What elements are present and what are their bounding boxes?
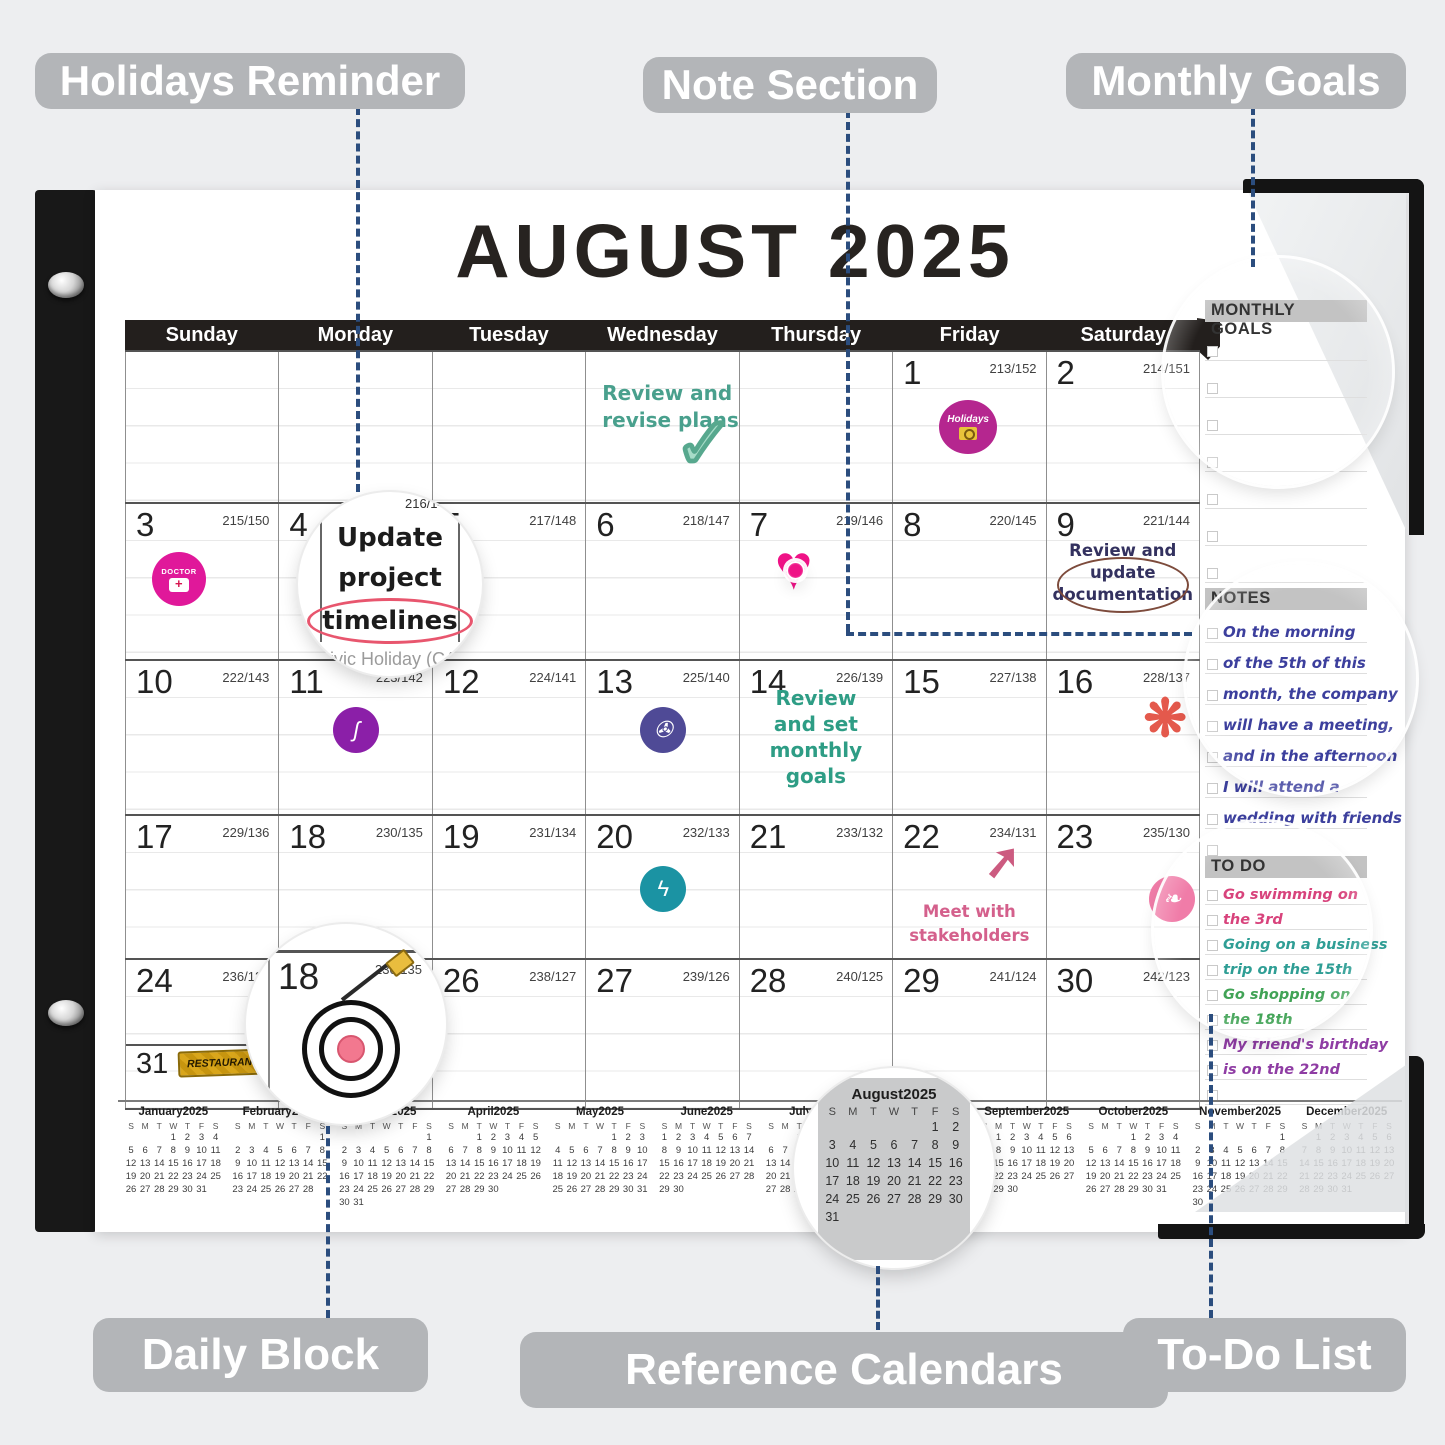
mini-day: 25 xyxy=(843,1190,864,1208)
note-line: goals xyxy=(740,763,892,789)
weekday-letter: T xyxy=(394,1121,408,1131)
mini-day: 7 xyxy=(593,1144,607,1157)
mini-day: 6 xyxy=(1062,1131,1076,1144)
mini-day: 22 xyxy=(657,1170,671,1183)
day-code: 217/148 xyxy=(529,513,576,528)
mini-day: 24 xyxy=(822,1190,843,1208)
day-number: 18 xyxy=(278,956,319,998)
mini-day: 24 xyxy=(635,1170,649,1183)
mini-day: 22 xyxy=(607,1170,621,1183)
backboard-edge xyxy=(1409,179,1424,535)
mini-day: 13 xyxy=(579,1157,593,1170)
mini-day: 30 xyxy=(337,1196,351,1209)
mini-day: 7 xyxy=(301,1144,315,1157)
checkbox-icon xyxy=(1207,814,1218,825)
mini-day: 3 xyxy=(1155,1131,1169,1144)
mini-day: 20 xyxy=(579,1170,593,1183)
mini-day: 20 xyxy=(1062,1157,1076,1170)
day-number: 1 xyxy=(903,354,921,392)
callout-monthly-goals: Monthly Goals xyxy=(1066,53,1406,109)
day-number: 18 xyxy=(289,818,326,856)
blank xyxy=(380,1131,394,1144)
mini-day: 10 xyxy=(194,1144,208,1157)
mini-day: 2 xyxy=(621,1131,635,1144)
mini-day: 3 xyxy=(822,1136,843,1154)
day-code: 221/144 xyxy=(1143,513,1190,528)
blank xyxy=(593,1131,607,1144)
weekday-letter: F xyxy=(301,1121,315,1131)
mini-day: 26 xyxy=(124,1183,138,1196)
blank xyxy=(565,1131,579,1144)
blank xyxy=(1191,1131,1205,1144)
weekday-letter: W xyxy=(593,1121,607,1131)
day-code: 238/127 xyxy=(529,969,576,984)
mini-day: 13 xyxy=(394,1157,408,1170)
day-code: 230/135 xyxy=(376,825,423,840)
mini-day: 4 xyxy=(259,1144,273,1157)
mini-day: 18 xyxy=(551,1170,565,1183)
checkbox-icon xyxy=(1207,531,1218,542)
day-number: 15 xyxy=(903,663,940,701)
week-row: 10222/14311223/142ʃ12224/14113225/140✇14… xyxy=(125,659,1200,814)
weekday-letter: W xyxy=(1126,1121,1140,1131)
heart-ring-sticker: ♥ xyxy=(766,544,822,596)
mini-day: 18 xyxy=(366,1170,380,1183)
mini-day: 11 xyxy=(209,1144,223,1157)
weekday-letter: W xyxy=(1020,1121,1034,1131)
mini-month-title: October2025 xyxy=(1084,1106,1183,1118)
mini-day: 15 xyxy=(657,1157,671,1170)
mini-days: 1234567891011121314151617181920212223242… xyxy=(551,1131,650,1196)
mini-day: 26 xyxy=(1084,1183,1098,1196)
mini-day: 13 xyxy=(444,1157,458,1170)
mini-day: 20 xyxy=(1098,1170,1112,1183)
mini-day: 15 xyxy=(472,1157,486,1170)
mini-day: 23 xyxy=(945,1172,966,1190)
mini-day: 9 xyxy=(486,1144,500,1157)
mini-day: 7 xyxy=(778,1144,792,1157)
mini-day: 10 xyxy=(686,1144,700,1157)
mini-day: 22 xyxy=(472,1170,486,1183)
mini-day: 4 xyxy=(209,1131,223,1144)
day-cell: 17229/136 xyxy=(125,816,279,958)
mini-day: 24 xyxy=(351,1183,365,1196)
mini-day: 13 xyxy=(138,1157,152,1170)
mini-day: 21 xyxy=(458,1170,472,1183)
connector-reference xyxy=(876,1266,880,1330)
connector-daily-block xyxy=(326,1126,330,1318)
mini-days: 1234567891011121314151617181920212223242… xyxy=(444,1131,543,1196)
mini-day: 14 xyxy=(152,1157,166,1170)
mini-day: 25 xyxy=(514,1170,528,1183)
weekday-letter: S xyxy=(1275,1121,1289,1131)
mini-day: 15 xyxy=(1126,1157,1140,1170)
mini-day: 27 xyxy=(394,1183,408,1196)
mini-day: 20 xyxy=(728,1157,742,1170)
mini-day: 28 xyxy=(458,1183,472,1196)
mini-day: 7 xyxy=(1112,1144,1126,1157)
mini-day: 25 xyxy=(1034,1170,1048,1183)
mini-day: 27 xyxy=(138,1183,152,1196)
mini-day: 29 xyxy=(166,1183,180,1196)
mini-weekday-row: SMTWTFS xyxy=(444,1121,543,1131)
blank xyxy=(843,1118,864,1136)
backboard-edge xyxy=(1409,1056,1424,1239)
day-number: 9 xyxy=(1057,506,1075,544)
mini-day: 10 xyxy=(500,1144,514,1157)
mini-day: 14 xyxy=(458,1157,472,1170)
day-number: 30 xyxy=(1057,962,1094,1000)
mini-day: 1 xyxy=(607,1131,621,1144)
mini-day: 29 xyxy=(991,1183,1005,1196)
mini-day: 28 xyxy=(152,1183,166,1196)
mini-weekday-row: SMTWTFS xyxy=(657,1121,756,1131)
weekday-letter: S xyxy=(1169,1121,1183,1131)
mini-day: 16 xyxy=(486,1157,500,1170)
mini-weekday-row: SMTWTFS xyxy=(977,1121,1076,1131)
mini-day: 4 xyxy=(1169,1131,1183,1144)
day-header: Wednesday xyxy=(586,320,740,350)
mini-calendar: February2025SMTWTFS123456789101112131415… xyxy=(227,1106,334,1209)
mini-day: 27 xyxy=(728,1170,742,1183)
mini-day: 3 xyxy=(635,1131,649,1144)
holidays-label: Holidays xyxy=(947,414,989,425)
mini-day: 9 xyxy=(945,1136,966,1154)
callout-todo-list: To-Do List xyxy=(1123,1318,1406,1392)
day-header: Friday xyxy=(893,320,1047,350)
mini-day: 9 xyxy=(231,1157,245,1170)
mini-month-title: April2025 xyxy=(444,1106,543,1118)
weekday-letter: S xyxy=(231,1121,245,1131)
day-cell: 15227/138 xyxy=(893,661,1046,814)
mini-day: 21 xyxy=(1112,1170,1126,1183)
mini-day: 12 xyxy=(124,1157,138,1170)
weekday-header-bar: SundayMondayTuesdayWednesdayThursdayFrid… xyxy=(125,320,1200,350)
day-code: 240/125 xyxy=(836,969,883,984)
mini-day: 14 xyxy=(301,1157,315,1170)
mini-day: 24 xyxy=(245,1183,259,1196)
blank xyxy=(822,1118,843,1136)
mini-day: 13 xyxy=(764,1157,778,1170)
day-cell xyxy=(740,352,893,502)
mini-day: 22 xyxy=(422,1170,436,1183)
weekday-letter: S xyxy=(764,1121,778,1131)
mini-day: 30 xyxy=(486,1183,500,1196)
mini-day: 6 xyxy=(1098,1144,1112,1157)
mini-day: 8 xyxy=(991,1144,1005,1157)
day-code: 228/137 xyxy=(1143,670,1190,685)
mini-day: 9 xyxy=(1191,1157,1205,1170)
weekday-letter: F xyxy=(1261,1121,1275,1131)
day-header: Sunday xyxy=(125,320,279,350)
mini-day: 7 xyxy=(408,1144,422,1157)
day-cell: 19231/134 xyxy=(433,816,586,958)
weekday-letter: T xyxy=(1034,1121,1048,1131)
mini-day: 3 xyxy=(194,1131,208,1144)
cell-border-line xyxy=(256,950,446,953)
mini-weekday-row: SMTWTFS xyxy=(822,1106,966,1118)
mini-day: 25 xyxy=(551,1183,565,1196)
mini-day: 18 xyxy=(1034,1157,1048,1170)
weekday-letter: T xyxy=(1247,1121,1261,1131)
doctor-sticker: DOCTOR xyxy=(152,552,206,606)
cell-border-line xyxy=(268,952,270,1124)
mini-day: 8 xyxy=(657,1144,671,1157)
mini-day: 19 xyxy=(565,1170,579,1183)
binder-strip xyxy=(35,190,97,1232)
weekday-letter: S xyxy=(124,1121,138,1131)
day-code: 215/150 xyxy=(222,513,269,528)
note-line: Review xyxy=(740,685,892,711)
mini-day: 18 xyxy=(843,1172,864,1190)
day-cell: 6218/147 xyxy=(586,504,739,659)
mini-day: 8 xyxy=(166,1144,180,1157)
weekday-letter: S xyxy=(209,1121,223,1131)
mini-day: 17 xyxy=(686,1157,700,1170)
camera-icon xyxy=(959,427,977,440)
mini-day: 18 xyxy=(1169,1157,1183,1170)
mini-day: 1 xyxy=(472,1131,486,1144)
blank xyxy=(1084,1131,1098,1144)
mini-day: 9 xyxy=(1006,1144,1020,1157)
blank xyxy=(458,1131,472,1144)
mini-day: 11 xyxy=(700,1144,714,1157)
list-item-text: is on the 22nd xyxy=(1223,1062,1340,1078)
mini-day: 27 xyxy=(444,1183,458,1196)
mini-weekday-row: SMTWTFS xyxy=(124,1121,223,1131)
mini-day: 15 xyxy=(166,1157,180,1170)
weekday-letter: F xyxy=(194,1121,208,1131)
weekday-letter: M xyxy=(1098,1121,1112,1131)
mini-day: 21 xyxy=(301,1170,315,1183)
doctor-label: DOCTOR xyxy=(161,567,196,576)
blank xyxy=(1219,1131,1233,1144)
mini-day: 4 xyxy=(700,1131,714,1144)
day-cell: 13225/140✇ xyxy=(586,661,739,814)
connector-note xyxy=(846,110,850,632)
checkbox-icon xyxy=(1207,568,1218,579)
day-number: 29 xyxy=(903,962,940,1000)
mini-month-title: September2025 xyxy=(977,1106,1076,1118)
mini-day: 5 xyxy=(714,1131,728,1144)
mini-day: 5 xyxy=(124,1144,138,1157)
mini-day: 28 xyxy=(1112,1183,1126,1196)
day-number: 22 xyxy=(903,818,940,856)
mini-day: 17 xyxy=(1020,1157,1034,1170)
weekday-letter: T xyxy=(366,1121,380,1131)
mini-day: 3 xyxy=(500,1131,514,1144)
mini-day: 1 xyxy=(991,1131,1005,1144)
mini-day: 2 xyxy=(231,1144,245,1157)
mini-day: 23 xyxy=(180,1170,194,1183)
note-line: monthly xyxy=(740,737,892,763)
weekday-letter: T xyxy=(1112,1121,1126,1131)
day-cell: 14226/139Reviewand setmonthlygoals xyxy=(740,661,893,814)
day-cell: 11223/142ʃ xyxy=(279,661,432,814)
blank xyxy=(366,1131,380,1144)
mini-day: 20 xyxy=(444,1170,458,1183)
mini-day: 8 xyxy=(607,1144,621,1157)
weekday-letter: T xyxy=(152,1121,166,1131)
day-cell: 12224/141 xyxy=(433,661,586,814)
magnifier-holidays-reminder: 216/149 Updateprojecttimelines Civic Hol… xyxy=(298,492,482,676)
note-line: documentation xyxy=(1047,584,1199,606)
mini-day: 29 xyxy=(422,1183,436,1196)
mini-day: 9 xyxy=(337,1157,351,1170)
mini-day: 20 xyxy=(138,1170,152,1183)
mini-day: 9 xyxy=(621,1144,635,1157)
mini-day: 29 xyxy=(925,1190,946,1208)
weekday-letter: S xyxy=(945,1106,966,1118)
weekday-letter: T xyxy=(287,1121,301,1131)
weekday-letter: W xyxy=(166,1121,180,1131)
mini-day: 16 xyxy=(945,1154,966,1172)
blank xyxy=(1112,1131,1126,1144)
mini-day: 31 xyxy=(822,1208,843,1226)
mini-day: 12 xyxy=(714,1144,728,1157)
mini-day: 12 xyxy=(273,1157,287,1170)
mini-day: 10 xyxy=(351,1157,365,1170)
mini-day: 23 xyxy=(621,1170,635,1183)
day-number: 17 xyxy=(136,818,173,856)
mini-weekday-row: SMTWTFS xyxy=(1191,1121,1290,1131)
weekday-letter: T xyxy=(1140,1121,1154,1131)
mini-day: 26 xyxy=(1048,1170,1062,1183)
blank xyxy=(1247,1131,1261,1144)
crab-sticker: ❋ xyxy=(1143,693,1187,745)
ring-icon xyxy=(786,561,805,580)
mini-day: 30 xyxy=(1140,1183,1154,1196)
mini-day: 8 xyxy=(1126,1144,1140,1157)
mini-day: 24 xyxy=(1020,1170,1034,1183)
mini-days: 1234567891011121314151617181920212223242… xyxy=(657,1131,756,1196)
day-number: 7 xyxy=(750,506,768,544)
mini-day: 9 xyxy=(1140,1144,1154,1157)
mini-day: 6 xyxy=(394,1144,408,1157)
day-code: 225/140 xyxy=(683,670,730,685)
day-number: 28 xyxy=(750,962,787,1000)
mini-weekday-row: SMTWTFS xyxy=(1084,1121,1183,1131)
ribbon-sticker: ʃ xyxy=(333,707,379,753)
mini-day: 14 xyxy=(904,1154,925,1172)
mini-day: 10 xyxy=(245,1157,259,1170)
day-code: 239/126 xyxy=(683,969,730,984)
weekday-letter: T xyxy=(472,1121,486,1131)
magnifier-reference-calendar: August2025SMTWTFS12345678910111213141516… xyxy=(794,1068,994,1268)
day-code: 235/130 xyxy=(1143,825,1190,840)
weekday-letter: F xyxy=(1155,1121,1169,1131)
mini-day: 25 xyxy=(209,1170,223,1183)
mini-day: 17 xyxy=(194,1157,208,1170)
mini-day: 25 xyxy=(259,1183,273,1196)
mini-day: 24 xyxy=(500,1170,514,1183)
blank xyxy=(152,1131,166,1144)
mini-day: 30 xyxy=(1006,1183,1020,1196)
mini-day: 30 xyxy=(621,1183,635,1196)
day-header: Thursday xyxy=(739,320,893,350)
day-cell: 3215/150DOCTOR xyxy=(125,504,279,659)
mini-calendar: June2025SMTWTFS1234567891011121314151617… xyxy=(653,1106,760,1209)
blank xyxy=(444,1131,458,1144)
mini-day: 5 xyxy=(1084,1144,1098,1157)
mini-day: 6 xyxy=(884,1136,905,1154)
mini-day: 13 xyxy=(1062,1144,1076,1157)
mini-day: 14 xyxy=(1112,1157,1126,1170)
day-header: Tuesday xyxy=(432,320,586,350)
mini-day: 26 xyxy=(529,1170,543,1183)
mini-calendar: May2025SMTWTFS12345678910111213141516171… xyxy=(547,1106,654,1209)
mini-day: 3 xyxy=(351,1144,365,1157)
blank xyxy=(287,1131,301,1144)
day-code: 227/138 xyxy=(990,670,1037,685)
first-aid-kit-icon xyxy=(169,578,189,592)
mini-day: 12 xyxy=(1233,1157,1247,1170)
day-cell: ✓Review andrevise plans xyxy=(586,352,739,502)
mini-day: 23 xyxy=(1140,1170,1154,1183)
mini-month-title: May2025 xyxy=(551,1106,650,1118)
checkbox-icon xyxy=(1207,783,1218,794)
callout-note-section: Note Section xyxy=(643,57,937,113)
blank xyxy=(408,1131,422,1144)
mini-day: 16 xyxy=(1140,1157,1154,1170)
day-number: 16 xyxy=(1057,663,1094,701)
mini-day: 11 xyxy=(551,1157,565,1170)
mini-day: 28 xyxy=(778,1183,792,1196)
day-cell: 22234/131➚Meet withstakeholders xyxy=(893,816,1046,958)
weekday-letter: M xyxy=(843,1106,864,1118)
mini-day: 1 xyxy=(422,1131,436,1144)
day-number: 8 xyxy=(903,506,921,544)
mini-day: 23 xyxy=(231,1183,245,1196)
mini-day: 2 xyxy=(337,1144,351,1157)
mini-month-title: November2025 xyxy=(1191,1106,1290,1118)
mini-days: 1234567891011121314151617181920212223242… xyxy=(337,1131,436,1209)
weekday-letter: S xyxy=(742,1121,756,1131)
mini-day: 21 xyxy=(904,1172,925,1190)
mini-day: 29 xyxy=(1126,1183,1140,1196)
mini-day: 7 xyxy=(458,1144,472,1157)
blank xyxy=(884,1118,905,1136)
mini-day: 31 xyxy=(635,1183,649,1196)
mini-day: 31 xyxy=(1155,1183,1169,1196)
blank xyxy=(124,1131,138,1144)
mini-day: 16 xyxy=(671,1157,685,1170)
weekday-letter: S xyxy=(444,1121,458,1131)
day-code: 220/145 xyxy=(990,513,1037,528)
blank xyxy=(138,1131,152,1144)
mini-day: 10 xyxy=(822,1154,843,1172)
mini-day: 20 xyxy=(884,1172,905,1190)
weekday-letter: W xyxy=(700,1121,714,1131)
mini-day: 4 xyxy=(1219,1144,1233,1157)
day-cell: 20232/133ϟ xyxy=(586,816,739,958)
weekday-letter: F xyxy=(1048,1121,1062,1131)
weekday-letter: F xyxy=(408,1121,422,1131)
mini-day: 14 xyxy=(593,1157,607,1170)
mini-day: 27 xyxy=(579,1183,593,1196)
mini-day: 23 xyxy=(1191,1183,1205,1196)
mini-day: 17 xyxy=(822,1172,843,1190)
mini-day: 13 xyxy=(884,1154,905,1172)
mini-day: 4 xyxy=(366,1144,380,1157)
weekday-letter: S xyxy=(1062,1121,1076,1131)
day-code: 226/139 xyxy=(836,670,883,685)
day-number: 2 xyxy=(1057,354,1075,392)
mini-month-title: June2025 xyxy=(657,1106,756,1118)
mini-day: 2 xyxy=(486,1131,500,1144)
mini-days: 1234567891011121314151617181920212223242… xyxy=(1084,1131,1183,1196)
blank xyxy=(1233,1131,1247,1144)
